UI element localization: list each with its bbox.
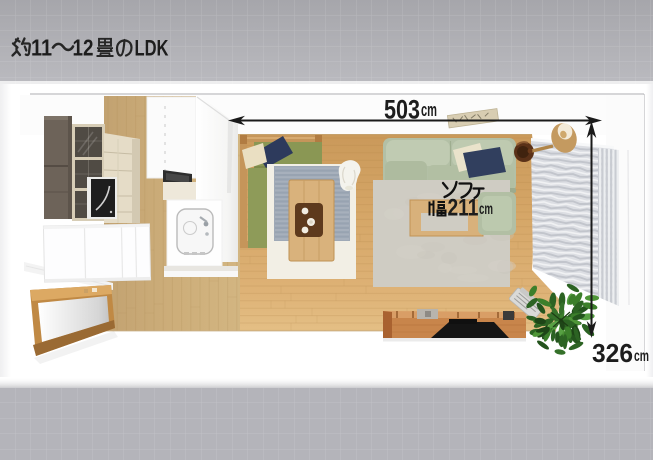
svg-text:11: 11	[31, 34, 52, 60]
svg-text:LDK: LDK	[135, 35, 170, 60]
svg-text:211: 211	[448, 194, 479, 221]
svg-text:cm: cm	[421, 100, 437, 120]
svg-text:326: 326	[592, 340, 633, 368]
svg-text:12: 12	[73, 34, 94, 60]
svg-text:503: 503	[384, 95, 420, 125]
svg-text:cm: cm	[479, 201, 493, 218]
svg-text:cm: cm	[634, 348, 649, 365]
